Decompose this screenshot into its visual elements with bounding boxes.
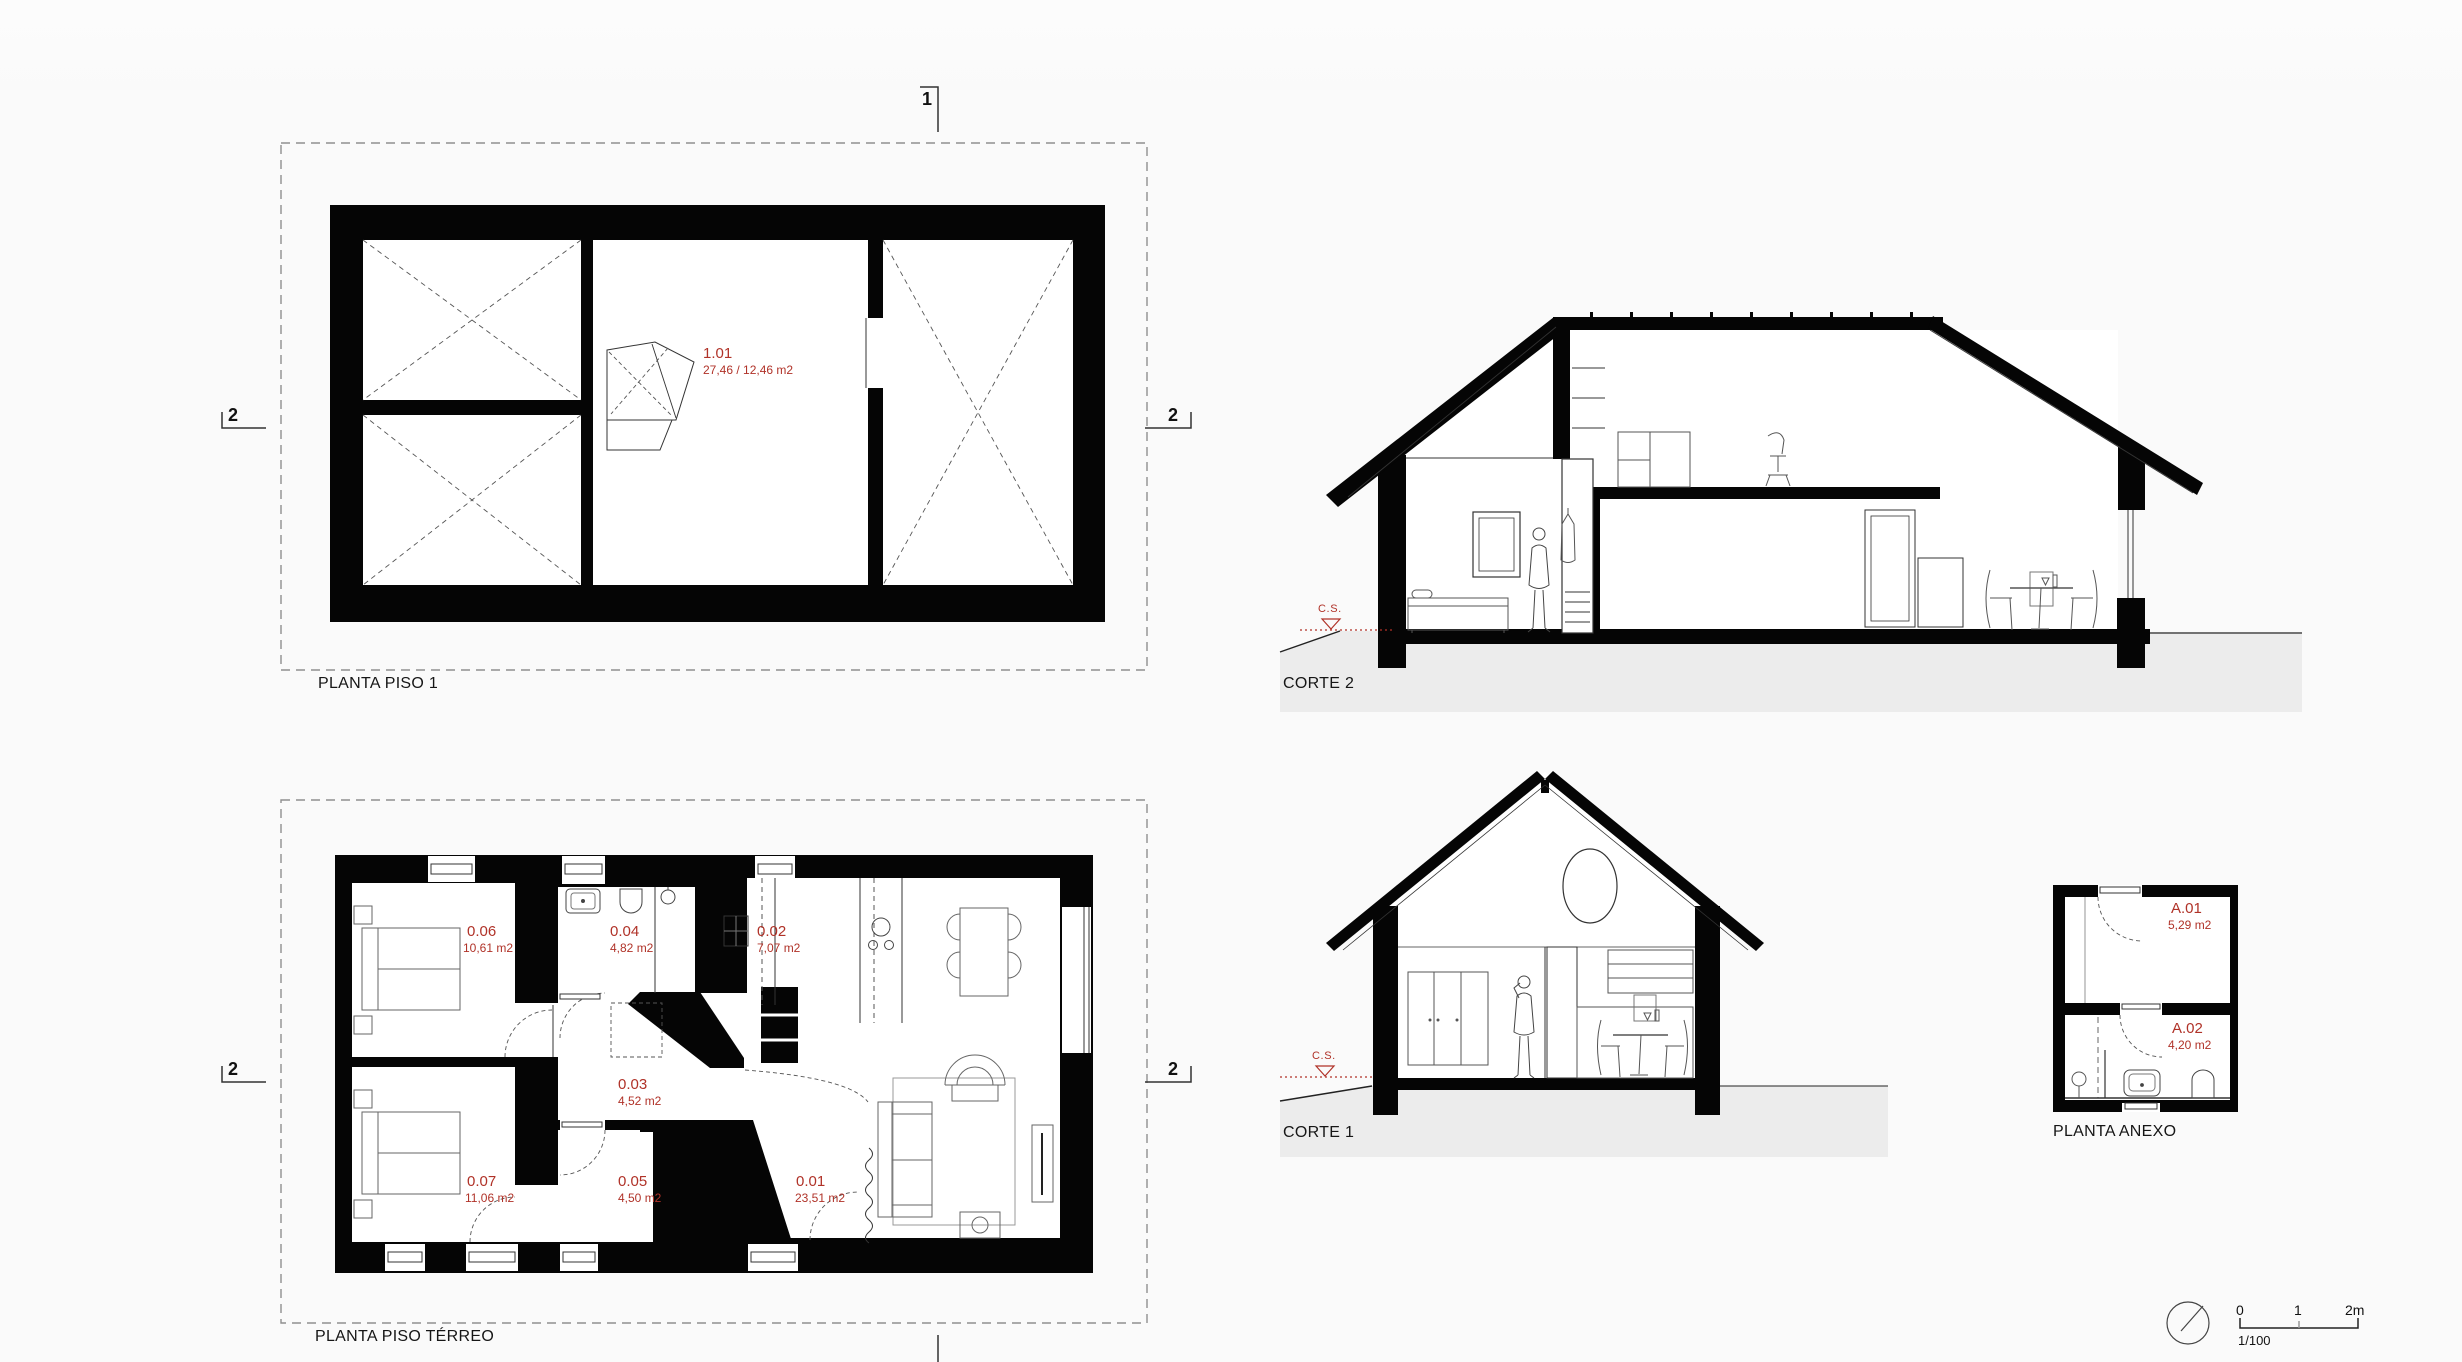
scale-tick-0: 0: [2236, 1303, 2244, 1317]
level-marker-corte2: C.S.: [1318, 604, 1342, 615]
cut-marker-2-left-bottom: 2: [228, 1060, 238, 1078]
section-corte2-drawing: [1280, 312, 2302, 712]
room-area-0.07: 11,06 m2: [465, 1192, 514, 1204]
room-label-A.02: A.02: [2172, 1021, 2203, 1036]
cut-marker-2-right-bottom: 2: [1168, 1060, 1178, 1078]
room-label-0.03: 0.03: [618, 1077, 647, 1092]
room-label-0.01: 0.01: [796, 1174, 825, 1189]
room-label-0.07: 0.07: [467, 1174, 496, 1189]
section-corte1-drawing: [1280, 771, 1888, 1157]
scale-tick-1: 1: [2294, 1303, 2302, 1317]
room-label-0.05: 0.05: [618, 1174, 647, 1189]
cut-marker-2-left-top: 2: [228, 406, 238, 424]
plan-anexo-title: PLANTA ANEXO: [2053, 1124, 2176, 1140]
room-area-0.03: 4,52 m2: [618, 1095, 661, 1107]
room-label-0.02: 0.02: [757, 924, 786, 939]
room-label-0.06: 0.06: [467, 924, 496, 939]
room-label-0.04: 0.04: [610, 924, 639, 939]
room-area-0.06: 10,61 m2: [463, 942, 513, 954]
plan-terreo-title: PLANTA PISO TÉRREO: [315, 1329, 494, 1345]
room-label-1.01: 1.01: [703, 346, 732, 361]
plan-piso1-drawing: [330, 205, 1105, 622]
cut-marker-2-right-top: 2: [1168, 406, 1178, 424]
room-area-0.04: 4,82 m2: [610, 942, 653, 954]
plan-terreo-drawing: [335, 855, 1093, 1273]
drawing-sheet: 1 2 2 2 2 PLANTA PISO 1 PLANTA PISO TÉRR…: [0, 0, 2462, 1362]
orientation-dial-icon: [2167, 1302, 2209, 1344]
room-area-0.05: 4,50 m2: [618, 1192, 661, 1204]
room-area-1.01: 27,46 / 12,46 m2: [703, 364, 793, 376]
plan-piso1-title: PLANTA PISO 1: [318, 676, 438, 692]
scale-tick-2m: 2m: [2345, 1303, 2364, 1317]
section-corte2-title: CORTE 2: [1283, 676, 1354, 692]
level-marker-corte1: C.S.: [1312, 1051, 1336, 1062]
section-corte1-title: CORTE 1: [1283, 1125, 1354, 1141]
room-area-0.02: 7,07 m2: [757, 942, 800, 954]
cut-marker-1-top: 1: [922, 90, 932, 108]
room-label-A.01: A.01: [2171, 901, 2202, 916]
room-area-0.01: 23,51 m2: [795, 1192, 845, 1204]
room-area-A.01: 5,29 m2: [2168, 919, 2211, 931]
room-area-A.02: 4,20 m2: [2168, 1039, 2211, 1051]
scale-ratio: 1/100: [2238, 1334, 2271, 1347]
